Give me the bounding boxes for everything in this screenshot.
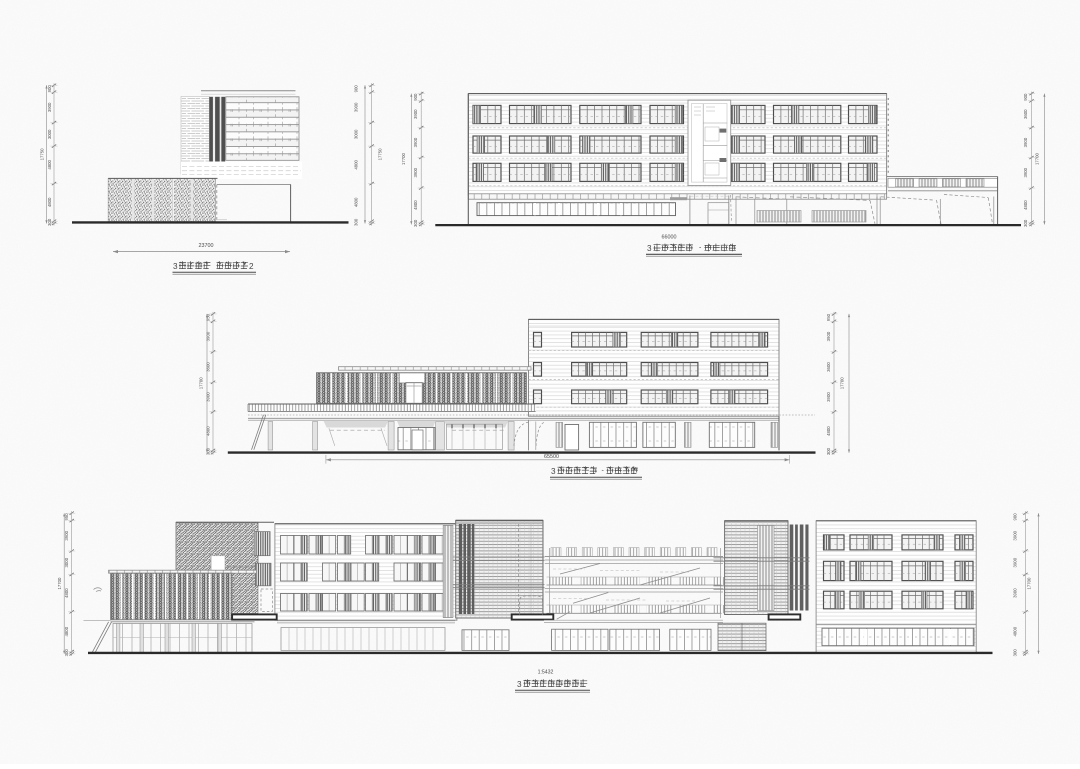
svg-text:4800: 4800 (826, 426, 831, 436)
svg-text:950: 950 (64, 513, 69, 521)
svg-text:17750: 17750 (378, 148, 383, 161)
svg-text:66000: 66000 (662, 234, 677, 240)
svg-text:4800: 4800 (1023, 200, 1028, 210)
svg-text:4800: 4800 (205, 426, 210, 436)
svg-text:900: 900 (354, 85, 359, 93)
svg-text:3900: 3900 (413, 109, 418, 119)
svg-text:3600: 3600 (205, 362, 210, 372)
svg-text:4800: 4800 (47, 197, 52, 207)
svg-text:17700: 17700 (57, 577, 62, 590)
svg-text:17700: 17700 (198, 377, 203, 390)
svg-text:3900: 3900 (47, 102, 52, 112)
svg-text:3900: 3900 (1013, 588, 1018, 598)
svg-text:3900: 3900 (354, 102, 359, 112)
svg-text:4800: 4800 (354, 197, 359, 207)
svg-text:4800: 4800 (354, 159, 359, 169)
svg-text:3900: 3900 (413, 137, 418, 147)
svg-text:3900: 3900 (1023, 167, 1028, 177)
svg-text:3900: 3900 (826, 392, 831, 402)
svg-text:17750: 17750 (40, 148, 45, 161)
svg-text:300: 300 (47, 218, 52, 226)
svg-text:300: 300 (1023, 219, 1028, 227)
svg-text:950: 950 (826, 313, 831, 321)
svg-text:17700: 17700 (1027, 577, 1032, 590)
svg-text:3: 3 (551, 467, 556, 476)
svg-text:300: 300 (1013, 649, 1018, 657)
svg-text:2: 2 (249, 262, 254, 271)
svg-text:3600: 3600 (1023, 109, 1028, 119)
svg-text:3900: 3900 (205, 331, 210, 341)
svg-text:900: 900 (413, 93, 418, 101)
svg-text:300: 300 (826, 447, 831, 455)
svg-text:3900: 3900 (1013, 557, 1018, 567)
svg-text:4800: 4800 (64, 588, 69, 598)
svg-text:300: 300 (413, 219, 418, 227)
svg-text:900: 900 (1023, 93, 1028, 101)
svg-text:3: 3 (173, 262, 178, 271)
svg-text:17700: 17700 (840, 377, 845, 390)
svg-text:4800: 4800 (1013, 626, 1018, 636)
svg-text:1:5432: 1:5432 (538, 670, 554, 676)
svg-text:65500: 65500 (544, 454, 559, 460)
svg-text:300: 300 (205, 447, 210, 455)
svg-text:3900: 3900 (205, 392, 210, 402)
svg-text:900: 900 (1013, 513, 1018, 521)
svg-text:3900: 3900 (826, 331, 831, 341)
svg-text:3900: 3900 (1023, 137, 1028, 147)
svg-text:3900: 3900 (413, 167, 418, 177)
svg-text:3: 3 (647, 244, 652, 253)
svg-text:3000: 3000 (64, 557, 69, 567)
svg-text:950: 950 (205, 313, 210, 321)
svg-text:3900: 3900 (64, 530, 69, 540)
svg-text:4800: 4800 (64, 626, 69, 636)
svg-text:3000: 3000 (354, 129, 359, 139)
svg-text:23700: 23700 (199, 243, 214, 249)
svg-text:3900: 3900 (1013, 530, 1018, 540)
svg-text:300: 300 (354, 218, 359, 226)
svg-text:17700: 17700 (401, 152, 406, 165)
svg-text:3: 3 (517, 680, 522, 689)
svg-text:300: 300 (64, 649, 69, 657)
svg-text:17700: 17700 (1035, 152, 1040, 165)
svg-text:3000: 3000 (47, 129, 52, 139)
svg-text:3600: 3600 (826, 362, 831, 372)
svg-text:4800: 4800 (413, 200, 418, 210)
svg-text:4800: 4800 (47, 159, 52, 169)
